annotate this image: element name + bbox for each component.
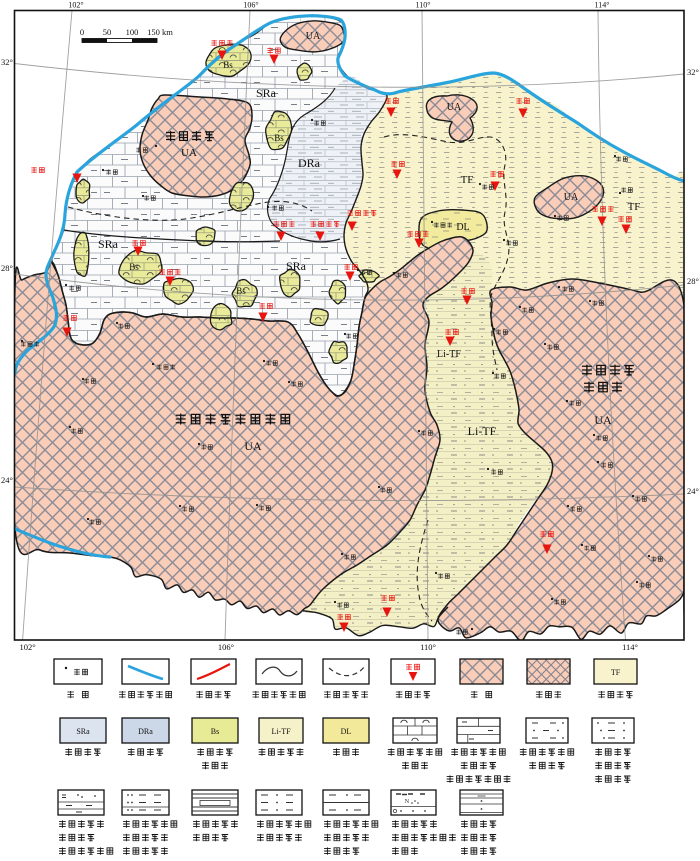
svg-text:150 km: 150 km <box>147 27 173 37</box>
svg-text:SRa: SRa <box>256 86 277 100</box>
svg-text:Bs: Bs <box>274 133 284 143</box>
svg-text:102°: 102° <box>20 642 36 652</box>
svg-text:110°: 110° <box>420 642 436 652</box>
svg-text:N: N <box>404 798 409 805</box>
svg-text:TF: TF <box>461 174 474 186</box>
svg-text:106°: 106° <box>243 1 258 10</box>
svg-text:DL: DL <box>341 727 352 736</box>
svg-text:Li-TF: Li-TF <box>437 349 461 360</box>
svg-text:SRa: SRa <box>286 259 307 273</box>
svg-text:Bs: Bs <box>129 262 139 272</box>
svg-text:UA: UA <box>306 31 321 42</box>
svg-text:Bs: Bs <box>211 727 219 736</box>
svg-text:28°: 28° <box>687 276 699 286</box>
svg-text:32°: 32° <box>687 67 699 77</box>
svg-text:Bs: Bs <box>223 60 233 70</box>
svg-text:TF: TF <box>611 668 621 677</box>
svg-text:DRa: DRa <box>298 156 321 170</box>
svg-text:SRa: SRa <box>76 727 90 736</box>
svg-text:110°: 110° <box>416 1 431 10</box>
svg-text:24°: 24° <box>1 475 13 485</box>
svg-text:106°: 106° <box>218 642 234 652</box>
svg-text:Li-TF: Li-TF <box>468 424 497 438</box>
svg-text:0: 0 <box>80 27 84 37</box>
svg-text:UA: UA <box>244 439 262 453</box>
svg-text:UA: UA <box>181 147 197 159</box>
svg-text:UA: UA <box>447 102 462 113</box>
svg-text:Bs: Bs <box>236 286 246 296</box>
svg-text:102°: 102° <box>68 1 83 10</box>
svg-text:50: 50 <box>103 27 112 37</box>
svg-text:100: 100 <box>126 27 139 37</box>
svg-text:Li-TF: Li-TF <box>271 727 291 736</box>
svg-text:UA: UA <box>594 413 612 427</box>
svg-text:28°: 28° <box>1 263 13 273</box>
svg-text:DRa: DRa <box>138 727 153 736</box>
svg-text:24°: 24° <box>687 486 699 496</box>
svg-text:114°: 114° <box>595 1 610 10</box>
svg-text:SRa: SRa <box>98 237 119 251</box>
svg-text:DL: DL <box>456 222 469 233</box>
svg-text:32°: 32° <box>1 57 13 67</box>
svg-text:114°: 114° <box>622 642 638 652</box>
svg-text:UA: UA <box>564 192 579 203</box>
svg-text:TF: TF <box>628 201 641 213</box>
